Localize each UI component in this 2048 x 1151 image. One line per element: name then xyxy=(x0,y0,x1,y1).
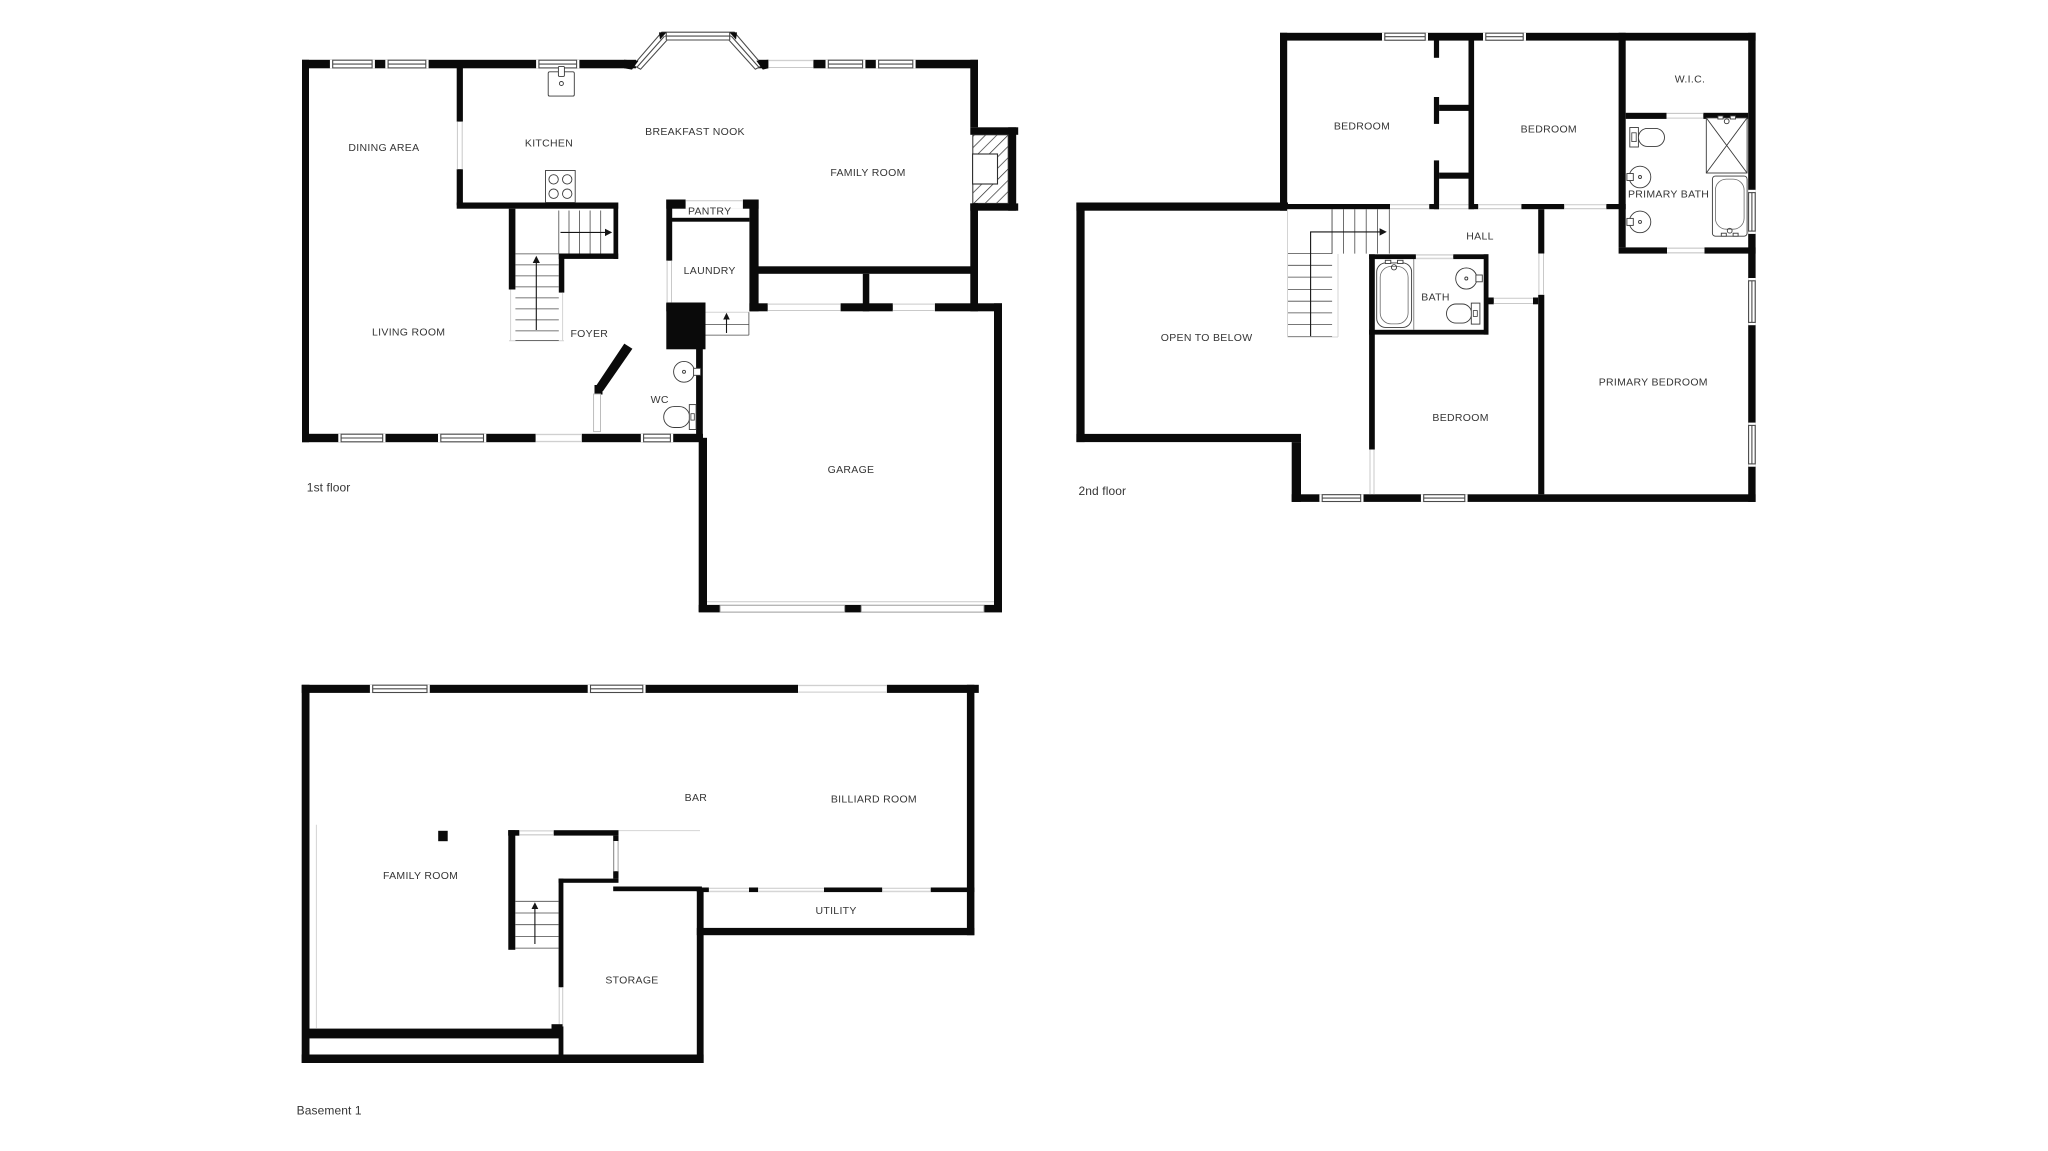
svg-text:BEDROOM: BEDROOM xyxy=(1432,412,1488,424)
svg-text:LAUNDRY: LAUNDRY xyxy=(684,265,736,277)
svg-text:LIVING ROOM: LIVING ROOM xyxy=(372,327,445,339)
svg-text:BEDROOM: BEDROOM xyxy=(1521,124,1577,136)
svg-text:FAMILY ROOM: FAMILY ROOM xyxy=(830,167,905,179)
svg-text:KITCHEN: KITCHEN xyxy=(525,138,573,150)
svg-text:PRIMARY BATH: PRIMARY BATH xyxy=(1628,188,1709,200)
svg-text:FOYER: FOYER xyxy=(570,328,608,340)
svg-text:WC: WC xyxy=(651,394,669,406)
svg-text:1st floor: 1st floor xyxy=(307,481,351,495)
svg-text:W.I.C.: W.I.C. xyxy=(1675,74,1705,86)
svg-text:UTILITY: UTILITY xyxy=(815,905,856,917)
svg-text:BREAKFAST NOOK: BREAKFAST NOOK xyxy=(645,126,745,138)
svg-text:BAR: BAR xyxy=(685,792,708,804)
svg-text:BEDROOM: BEDROOM xyxy=(1334,120,1390,132)
svg-text:2nd floor: 2nd floor xyxy=(1079,484,1127,498)
svg-text:Basement 1: Basement 1 xyxy=(297,1104,362,1118)
svg-text:PRIMARY BEDROOM: PRIMARY BEDROOM xyxy=(1599,376,1708,388)
svg-text:HALL: HALL xyxy=(1466,231,1493,243)
svg-text:OPEN TO BELOW: OPEN TO BELOW xyxy=(1161,332,1253,344)
svg-text:GARAGE: GARAGE xyxy=(828,464,875,476)
svg-text:PANTRY: PANTRY xyxy=(688,205,731,217)
svg-text:STORAGE: STORAGE xyxy=(605,975,658,987)
svg-text:FAMILY ROOM: FAMILY ROOM xyxy=(383,870,458,882)
svg-text:BILLIARD ROOM: BILLIARD ROOM xyxy=(831,794,917,806)
svg-text:BATH: BATH xyxy=(1421,291,1449,303)
svg-text:DINING AREA: DINING AREA xyxy=(348,142,419,154)
